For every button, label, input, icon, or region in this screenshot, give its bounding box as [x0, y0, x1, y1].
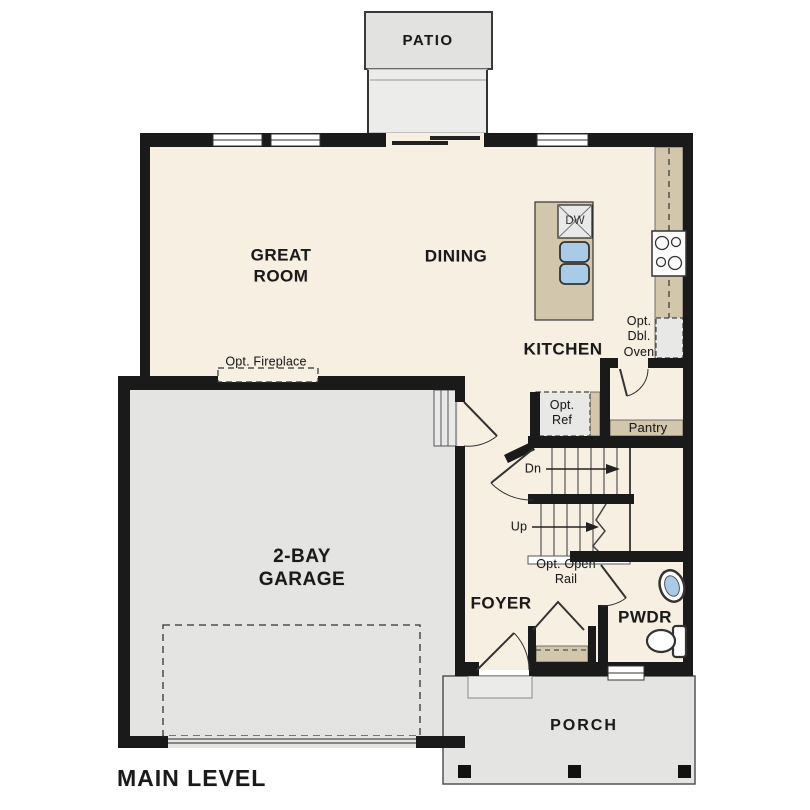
range	[652, 231, 686, 276]
annotation-opt-open-rail: Opt. Open Rail	[536, 557, 595, 588]
floor-plan-drawing	[0, 0, 810, 810]
room-label-porch: PORCH	[550, 716, 618, 736]
annotation-opt-ref: Opt. Ref	[550, 398, 574, 429]
room-label-foyer: FOYER	[470, 594, 531, 615]
room-label-garage: 2-BAY GARAGE	[259, 545, 345, 591]
annotation-opt-fireplace: Opt. Fireplace	[225, 354, 306, 369]
room-label-patio: PATIO	[402, 32, 453, 50]
double-oven-option	[656, 318, 683, 358]
room-label-kitchen: KITCHEN	[523, 340, 602, 361]
plan-title: MAIN LEVEL	[117, 764, 266, 792]
patio-slab	[365, 12, 492, 133]
annotation-opt-dbl-oven: Opt. Dbl. Oven	[624, 314, 655, 360]
garage-steps	[434, 390, 456, 446]
coat-closet-shelf	[536, 646, 588, 662]
annotation-stairs-down: Dn	[525, 461, 541, 476]
floor-plan: PATIO GREAT ROOM DINING KITCHEN 2-BAY GA…	[0, 0, 810, 810]
room-label-dining: DINING	[425, 247, 488, 268]
fireplace-option	[218, 368, 318, 382]
annotation-stairs-up: Up	[511, 519, 527, 534]
annotation-pantry: Pantry	[629, 420, 668, 436]
sliding-patio-door	[386, 133, 484, 147]
room-label-powder: PWDR	[618, 608, 672, 629]
annotation-dishwasher: DW	[565, 214, 584, 228]
garage-door	[168, 736, 416, 748]
room-label-great-room: GREAT ROOM	[251, 245, 312, 286]
